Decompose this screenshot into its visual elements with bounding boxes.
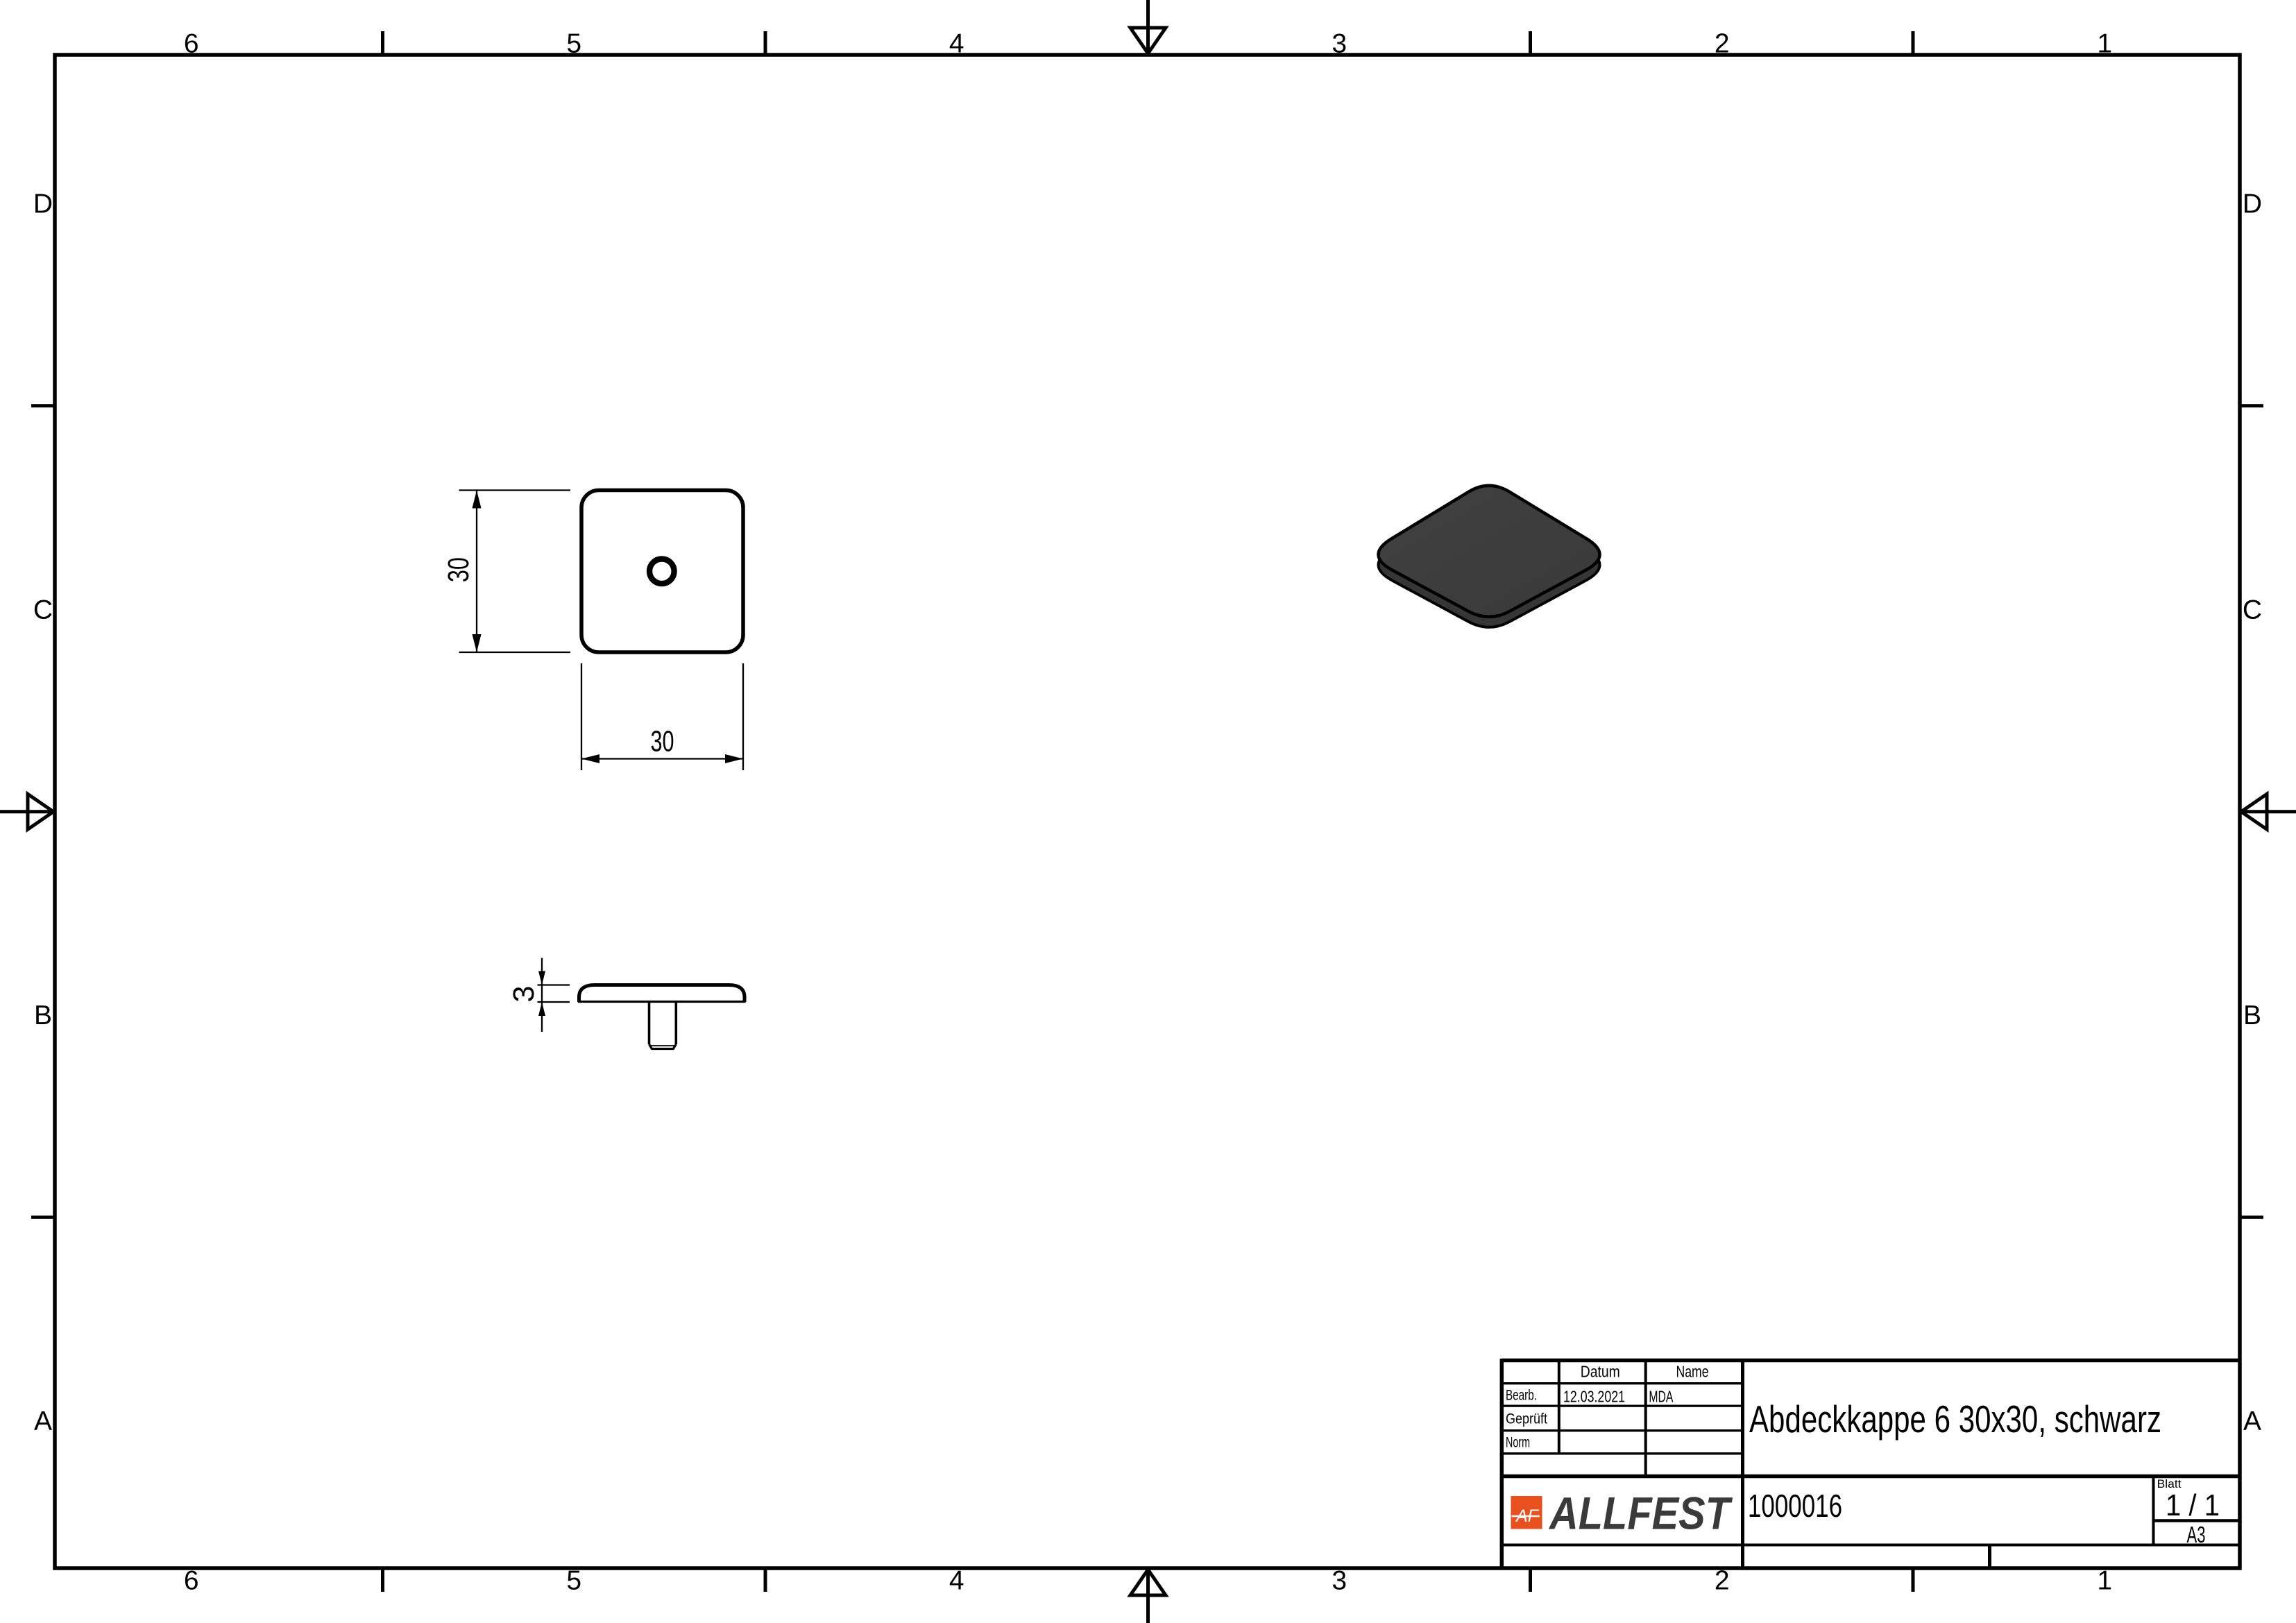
svg-text:Datum: Datum: [1581, 1363, 1620, 1381]
svg-text:D: D: [2243, 189, 2262, 219]
svg-text:5: 5: [566, 29, 581, 59]
svg-text:A: A: [2243, 1407, 2261, 1436]
svg-text:B: B: [2243, 1001, 2261, 1030]
svg-text:3: 3: [1332, 1566, 1347, 1596]
svg-text:12.03.2021: 12.03.2021: [1563, 1388, 1625, 1406]
svg-text:30: 30: [651, 725, 674, 758]
svg-text:1: 1: [2097, 1566, 2112, 1596]
svg-text:1 / 1: 1 / 1: [2166, 1488, 2220, 1522]
svg-text:MDA: MDA: [1649, 1388, 1673, 1406]
svg-text:4: 4: [949, 29, 964, 59]
svg-text:1000016: 1000016: [1748, 1488, 1842, 1524]
svg-text:30: 30: [442, 557, 475, 582]
svg-text:Name: Name: [1676, 1363, 1709, 1381]
svg-text:2: 2: [1715, 29, 1730, 59]
svg-text:C: C: [2243, 595, 2262, 624]
svg-text:3: 3: [1332, 29, 1347, 59]
svg-text:Geprüft: Geprüft: [1506, 1411, 1547, 1427]
svg-text:1: 1: [2097, 29, 2112, 59]
svg-text:6: 6: [184, 1566, 199, 1596]
svg-text:ALLFEST: ALLFEST: [1548, 1488, 1733, 1539]
svg-text:3: 3: [507, 986, 541, 1003]
svg-text:C: C: [33, 595, 53, 624]
svg-text:2: 2: [1715, 1566, 1730, 1596]
svg-text:A3: A3: [2187, 1522, 2206, 1547]
svg-text:B: B: [34, 1001, 52, 1030]
svg-text:6: 6: [184, 29, 199, 59]
svg-text:Bearb.: Bearb.: [1506, 1388, 1537, 1404]
svg-text:D: D: [33, 189, 53, 219]
svg-text:Abdeckkappe 6 30x30, schwarz: Abdeckkappe 6 30x30, schwarz: [1749, 1397, 2161, 1441]
svg-text:4: 4: [949, 1566, 964, 1596]
svg-text:A: A: [34, 1407, 52, 1436]
svg-text:Norm: Norm: [1506, 1435, 1530, 1451]
svg-text:5: 5: [566, 1566, 581, 1596]
